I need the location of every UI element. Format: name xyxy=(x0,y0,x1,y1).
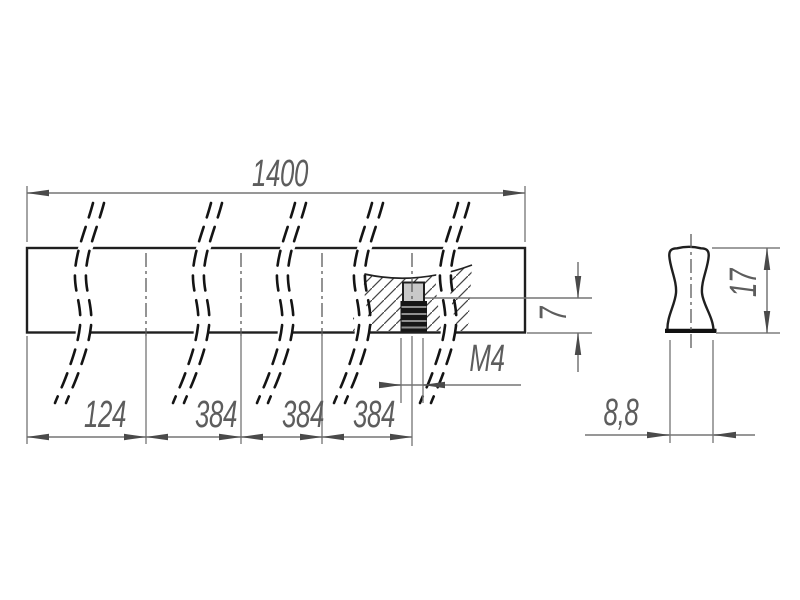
dim-label-spacing-4: 384 xyxy=(353,393,395,435)
thread-hole-pilot xyxy=(403,283,424,303)
dim-label-thread-depth: 7 xyxy=(532,305,574,321)
dim-label-profile-width: 8,8 xyxy=(604,391,639,433)
technical-drawing: 1400 7 M4 xyxy=(0,0,800,600)
dim-label-spacing-2: 384 xyxy=(195,393,237,435)
dim-label-spacing-1: 124 xyxy=(84,393,126,435)
dim-label-spacing-3: 384 xyxy=(282,393,324,435)
thread-size-label: M4 xyxy=(469,337,504,379)
dim-label-overall-length: 1400 xyxy=(252,152,308,194)
dim-label-profile-height: 17 xyxy=(722,267,764,297)
